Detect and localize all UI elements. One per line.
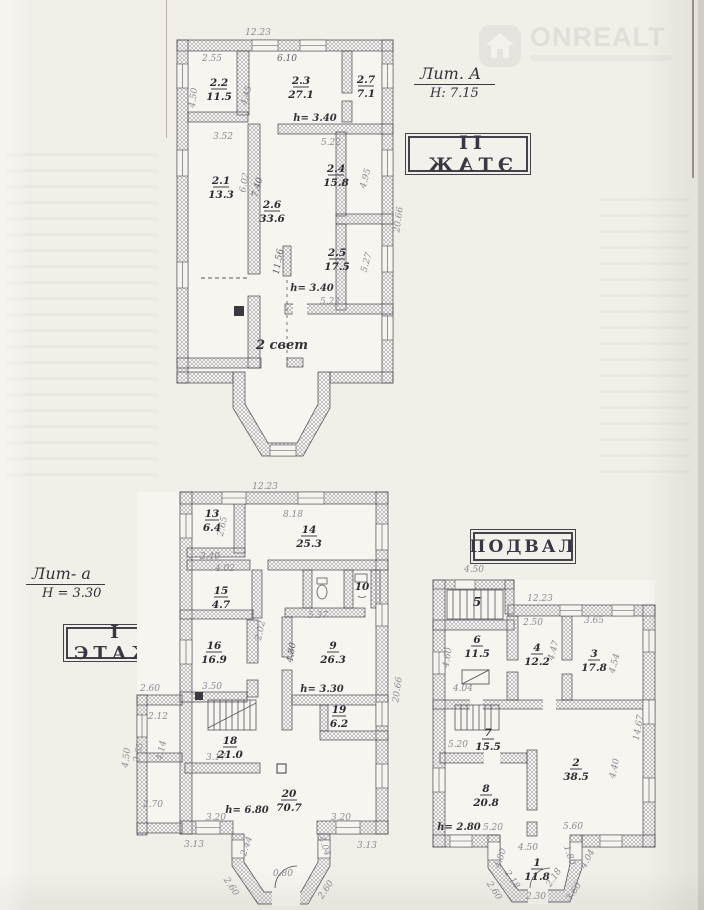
room-number: 4 — [533, 642, 540, 654]
dim-label: 4.04 — [452, 684, 473, 694]
dim-label: 3.13 — [184, 840, 204, 850]
dim-label: 5.60 — [563, 822, 583, 832]
room-area: 7.1 — [357, 88, 375, 100]
height-note: h= 3.30 — [300, 684, 344, 695]
room-number: 9 — [329, 640, 337, 652]
room-number: 7 — [484, 727, 492, 739]
door-gap — [543, 699, 556, 710]
room-number: 19 — [332, 704, 347, 716]
column — [277, 764, 286, 773]
room-area: 11.5 — [206, 91, 232, 103]
two-light-note: 2 свет — [255, 338, 308, 353]
room-area: 20.8 — [472, 797, 499, 809]
room-number: 2 — [571, 757, 579, 769]
dim-label: 3.20 — [206, 813, 226, 823]
room-number: 8 — [482, 783, 490, 795]
room-area: 13.3 — [208, 189, 234, 201]
room-number: 20 — [281, 788, 297, 800]
room-number: 6 — [473, 634, 481, 646]
room-number: 16 — [207, 640, 222, 652]
room-area: 11.5 — [464, 648, 490, 660]
room-number: 2.7 — [356, 74, 376, 86]
room-area: 17.8 — [581, 662, 607, 674]
dim-label: 2.30 — [525, 892, 546, 902]
door-gap — [484, 752, 500, 764]
dim-label: 5.22 — [321, 138, 341, 148]
dim-label: 4.50 — [463, 565, 484, 575]
room-area: 16.9 — [201, 654, 227, 666]
dim-label: 4.50 — [121, 747, 134, 769]
door-gap — [293, 303, 307, 315]
dim-label: 12.23 — [527, 594, 553, 604]
dim-label: 20.66 — [391, 676, 405, 704]
room-number: 2.2 — [209, 77, 228, 89]
room-area: 6.2 — [330, 718, 348, 730]
room-number: 2.3 — [291, 75, 310, 87]
room-number: 3 — [590, 648, 597, 660]
door-gap — [272, 890, 300, 906]
window-well — [462, 670, 489, 684]
dim-label: 2.40 — [199, 552, 220, 562]
room-number: 14 — [302, 524, 317, 536]
room-area: 15.5 — [475, 741, 501, 753]
dim-label: 3.65 — [584, 616, 604, 626]
room-area: 26.3 — [319, 654, 346, 666]
room-area: 33.6 — [259, 213, 285, 225]
room-area: 4.7 — [212, 599, 231, 611]
dim-label: 2.70 — [142, 800, 163, 810]
room-number: 2.6 — [262, 199, 282, 211]
dim-label: 20.66 — [392, 206, 406, 234]
room-area: 27.1 — [287, 89, 314, 101]
floorplan-drawing: 2.2 11.5 2.3 27.1 2.7 7.1 2.1 13.3 2.4 — [0, 0, 704, 910]
dim-label: 12.23 — [252, 482, 278, 492]
dim-label: 5.20 — [483, 823, 503, 833]
dim-label: 6.10 — [277, 54, 297, 64]
room-area: 15.8 — [323, 177, 349, 189]
height-note: h= 3.40 — [293, 113, 337, 124]
dim-label: 3.52 — [213, 132, 233, 142]
dim-label: 4.02 — [214, 564, 235, 574]
dim-label: 8.18 — [283, 510, 303, 520]
dim-label: 3.20 — [331, 813, 351, 823]
dim-label: 2.12 — [147, 712, 168, 722]
room-number: 10 — [355, 581, 370, 593]
dim-label: 12.23 — [245, 28, 271, 38]
door-gap — [470, 699, 483, 710]
dim-label: 5.20 — [448, 740, 468, 750]
room-area: 38.5 — [563, 771, 589, 783]
dim-label: 2.55 — [201, 54, 222, 64]
height-note: h= 6.80 — [225, 805, 269, 816]
dim-label: 2.50 — [522, 618, 543, 628]
dim-label: 3.50 — [202, 682, 222, 692]
scanned-floorplan-page: ONREALT II ЭТАЖ I ЭТАЖ ПОДВАЛ Лит. А H: … — [0, 0, 704, 910]
dim-label: 0.80 — [273, 869, 293, 879]
dim-label: 5.22 — [320, 297, 340, 307]
room-number: 2.4 — [326, 163, 345, 175]
room-number: 13 — [205, 508, 220, 520]
height-note: h= 2.80 — [437, 822, 481, 833]
plan-basement: 5 6 11.5 4 12.2 3 17.8 7 15.5 — [433, 565, 655, 904]
room-area: 17.5 — [324, 261, 350, 273]
dim-label: 4.50 — [517, 843, 538, 853]
room-area: 70.7 — [276, 802, 302, 814]
room-number: 2.5 — [327, 247, 346, 259]
room-number: 15 — [214, 585, 229, 597]
chimney — [195, 692, 203, 700]
room-number: 5 — [473, 595, 481, 609]
room-number: 2.1 — [211, 175, 230, 187]
dim-label: 3.17 — [206, 753, 226, 763]
dim-label: 3.13 — [357, 841, 377, 851]
chimney — [234, 306, 244, 316]
plan-floor2: 2.2 11.5 2.3 27.1 2.7 7.1 2.1 13.3 2.4 — [177, 28, 406, 456]
room-number: 1 — [533, 857, 540, 869]
dim-label: 2.60 — [220, 875, 240, 898]
dim-label: 2.60 — [139, 684, 160, 694]
room-number: 18 — [223, 735, 238, 747]
plan-floor1: 13 6.4 14 25.3 15 4.7 16 16.9 9 — [121, 482, 405, 906]
height-note: h= 3.40 — [290, 283, 334, 294]
room-area: 25.3 — [295, 538, 322, 550]
dim-label: 5.37 — [308, 611, 328, 621]
